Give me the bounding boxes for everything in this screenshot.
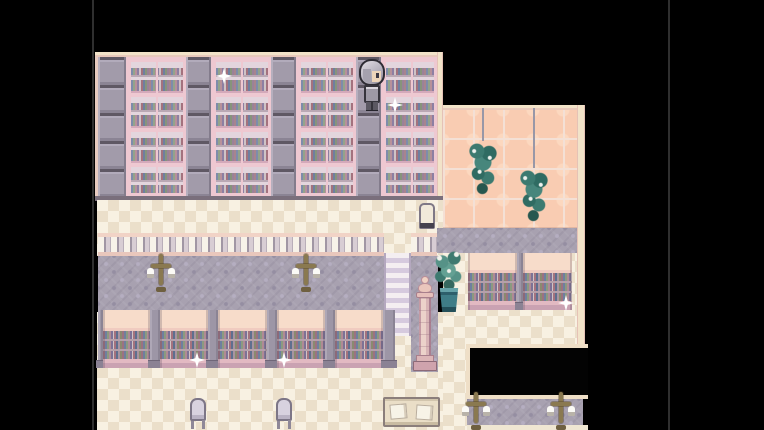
bookcase-pillar — [325, 310, 335, 368]
cross-icon — [296, 264, 316, 268]
character-bang — [363, 69, 371, 82]
candelabrum-base — [556, 425, 566, 430]
candle-icon — [568, 406, 575, 416]
character-legs — [366, 102, 378, 111]
candle-icon — [292, 268, 299, 278]
cross-icon — [466, 402, 486, 406]
plant-leaves-icon — [517, 168, 551, 224]
character-eye — [376, 73, 379, 78]
cross-icon — [474, 392, 478, 423]
candle-icon — [462, 406, 469, 416]
candelabrum-base — [156, 287, 166, 292]
cross-icon — [159, 254, 163, 285]
reading-table[interactable] — [383, 397, 440, 427]
candle-icon — [168, 268, 175, 278]
character-body — [364, 85, 380, 103]
cross-icon — [551, 402, 571, 406]
shelf-pillar — [98, 57, 126, 196]
tall-bookshelf[interactable] — [296, 57, 356, 196]
chair-back — [276, 398, 292, 421]
plant-pot-icon — [439, 288, 459, 312]
bookcase-pillar — [383, 310, 395, 368]
bookcase-pillar — [150, 310, 160, 368]
pedestal-base — [413, 361, 437, 371]
chair-back — [190, 398, 206, 421]
cross-icon — [559, 392, 563, 423]
low-bookcase[interactable] — [335, 310, 383, 368]
tall-bookshelf[interactable] — [381, 57, 437, 196]
candle-icon — [547, 406, 554, 416]
open-book-icon — [415, 404, 433, 420]
shelf-pillar — [186, 57, 211, 196]
tall-bookshelf[interactable] — [211, 57, 271, 196]
tall-bookshelf[interactable] — [126, 57, 186, 196]
cross-icon — [151, 264, 171, 268]
annex-right-trim — [577, 105, 585, 348]
bookcase-pillar — [267, 310, 277, 368]
candle-icon — [147, 268, 154, 278]
candle-icon — [313, 268, 320, 278]
annex-low-bookcase[interactable] — [468, 253, 517, 310]
open-book-icon — [389, 403, 407, 419]
pedestal-column — [419, 298, 431, 356]
cross-candelabrum[interactable] — [463, 392, 489, 430]
balustrade-left — [98, 233, 384, 256]
game-viewport[interactable] — [0, 0, 764, 430]
shelf-pillar — [271, 57, 296, 196]
cross-candelabrum[interactable] — [548, 392, 574, 430]
stairwell-pit[interactable] — [466, 344, 588, 399]
hanging-plant — [466, 141, 500, 197]
chair[interactable] — [276, 398, 292, 429]
plant-leaves-icon — [466, 141, 500, 197]
cross-candelabrum[interactable] — [148, 254, 174, 294]
low-bookcase[interactable] — [103, 310, 150, 368]
bookcase-pillar — [208, 310, 218, 368]
library-map[interactable] — [95, 0, 670, 430]
low-bookcase[interactable] — [218, 310, 267, 368]
reading-carpet[interactable] — [98, 256, 384, 312]
player-character[interactable] — [358, 56, 386, 112]
annex-tiled-wall — [443, 110, 577, 230]
candle-icon — [483, 406, 490, 416]
hanging-plant — [517, 168, 551, 224]
chair[interactable] — [190, 398, 206, 429]
pedestal-statue[interactable] — [412, 276, 438, 372]
cross-icon — [304, 254, 308, 285]
standing-sign[interactable] — [419, 203, 435, 229]
candelabrum-base — [301, 287, 311, 292]
screen-edge-left — [92, 0, 94, 430]
cross-candelabrum[interactable] — [293, 254, 319, 294]
candelabrum-base — [471, 425, 481, 430]
